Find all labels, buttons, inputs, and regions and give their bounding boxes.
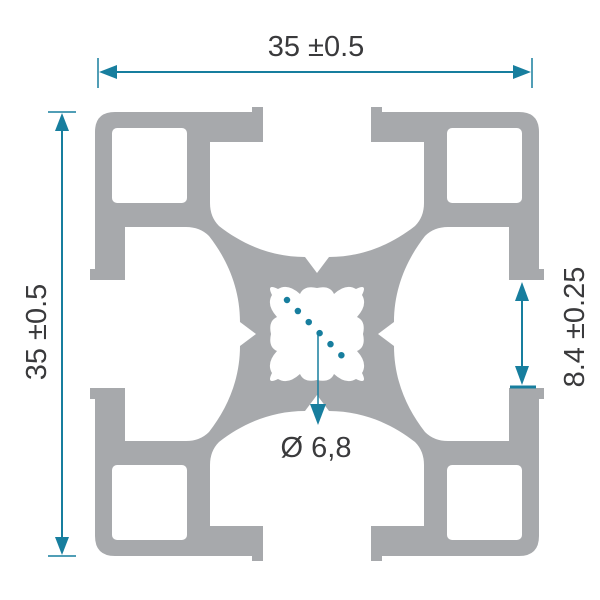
profile-technical-drawing: 35 ±0.5 35 ±0.5 8.4 ±0.25 Ø 6,8	[0, 0, 600, 600]
width-dimension-label: 35 ±0.5	[268, 31, 365, 63]
extrusion-profile	[90, 107, 544, 561]
slot-arrowhead-top	[515, 282, 529, 301]
corner-chamber-hole	[112, 128, 187, 203]
width-arrowhead-left	[99, 65, 117, 79]
bore-dimension-label: Ø 6,8	[281, 432, 352, 464]
height-arrowhead-top	[55, 113, 69, 131]
slot-dimension: 8.4 ±0.25	[510, 267, 591, 388]
slot-dimension-label: 8.4 ±0.25	[559, 267, 591, 388]
width-arrowhead-right	[513, 65, 531, 79]
width-dimension: 35 ±0.5	[98, 31, 532, 88]
height-arrowhead-bottom	[55, 537, 69, 555]
height-dimension-label: 35 ±0.5	[21, 284, 53, 381]
bore-leader-arrowhead	[310, 404, 326, 425]
drawing-canvas: 35 ±0.5 35 ±0.5 8.4 ±0.25 Ø 6,8	[0, 0, 600, 600]
slot-arrowhead-bottom	[515, 366, 529, 385]
height-dimension: 35 ±0.5	[21, 112, 76, 556]
